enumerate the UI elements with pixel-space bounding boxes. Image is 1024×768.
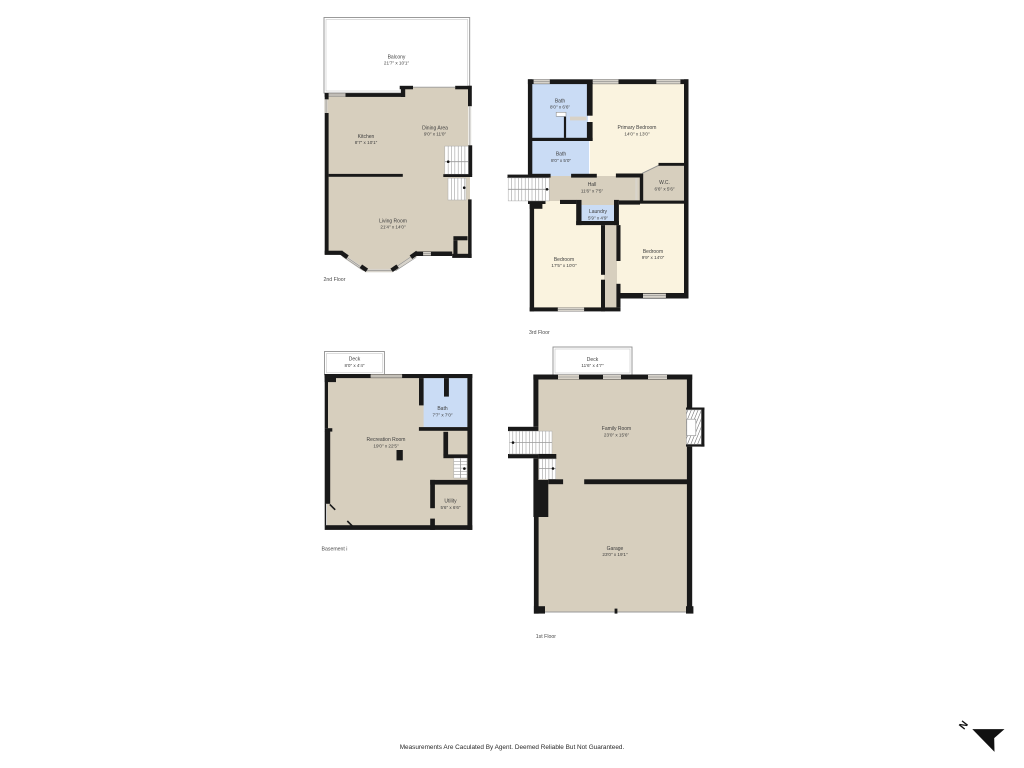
svg-text:Bedroom: Bedroom: [643, 249, 663, 255]
svg-text:21′4″ x 14′0″: 21′4″ x 14′0″: [380, 225, 406, 230]
svg-text:11′6″ x 4′7″: 11′6″ x 4′7″: [581, 363, 604, 368]
svg-text:11′6″ x 7′5″: 11′6″ x 7′5″: [581, 189, 604, 194]
svg-text:6′6″ x 5′6″: 6′6″ x 5′6″: [654, 187, 674, 192]
svg-text:Bedroom: Bedroom: [554, 257, 574, 263]
svg-text:23′0″ x 15′6″: 23′0″ x 15′6″: [604, 433, 630, 438]
svg-text:Deck: Deck: [587, 357, 599, 363]
svg-text:5′6″ x 6′6″: 5′6″ x 6′6″: [440, 505, 460, 510]
svg-text:Garage: Garage: [607, 546, 624, 552]
svg-text:Balcony: Balcony: [388, 54, 406, 60]
svg-text:W.C.: W.C.: [659, 180, 670, 186]
svg-text:Bath: Bath: [555, 98, 566, 104]
svg-text:Measurements Are Caculated By: Measurements Are Caculated By Agent. Dee…: [400, 744, 625, 751]
svg-text:19′0″ x 22′5″: 19′0″ x 22′5″: [373, 444, 399, 449]
svg-text:14′0″ x 13′0″: 14′0″ x 13′0″: [624, 132, 650, 137]
svg-text:23′0″ x 19′1″: 23′0″ x 19′1″: [602, 552, 628, 557]
svg-text:Bath: Bath: [556, 152, 567, 158]
svg-text:2nd Floor: 2nd Floor: [324, 277, 346, 283]
svg-text:5′9″ x 4′9″: 5′9″ x 4′9″: [588, 216, 608, 221]
svg-text:Living Room: Living Room: [379, 218, 407, 224]
svg-text:Kitchen: Kitchen: [358, 134, 375, 140]
svg-text:Primary Bedroom: Primary Bedroom: [618, 125, 657, 131]
svg-text:9′0″ x 11′0″: 9′0″ x 11′0″: [424, 132, 447, 137]
svg-text:9′9″ x 14′0″: 9′9″ x 14′0″: [642, 255, 665, 260]
svg-text:3rd Floor: 3rd Floor: [529, 330, 550, 336]
svg-text:21′7″ x 10′1″: 21′7″ x 10′1″: [384, 61, 410, 66]
svg-text:7′7″ x 7′0″: 7′7″ x 7′0″: [432, 413, 452, 418]
svg-text:1st Floor: 1st Floor: [536, 634, 556, 640]
svg-text:8′0″ x 6′6″: 8′0″ x 6′6″: [550, 105, 570, 110]
svg-text:Family Room: Family Room: [602, 426, 631, 432]
svg-text:8′7″ x 10′1″: 8′7″ x 10′1″: [355, 140, 378, 145]
svg-text:8′0″ x 5′0″: 8′0″ x 5′0″: [551, 158, 571, 163]
svg-text:Recreation Room: Recreation Room: [367, 437, 406, 443]
svg-text:Deck: Deck: [349, 357, 361, 363]
svg-text:Basement i: Basement i: [322, 547, 348, 553]
svg-text:8′0″ x 4′4″: 8′0″ x 4′4″: [344, 363, 364, 368]
svg-text:Dining Area: Dining Area: [422, 125, 448, 131]
svg-text:Bath: Bath: [437, 406, 448, 412]
svg-text:Utility: Utility: [444, 499, 457, 505]
svg-text:Hall: Hall: [588, 182, 597, 188]
svg-text:17′5″ x 10′0″: 17′5″ x 10′0″: [551, 263, 577, 268]
svg-text:Laundry: Laundry: [589, 209, 608, 215]
